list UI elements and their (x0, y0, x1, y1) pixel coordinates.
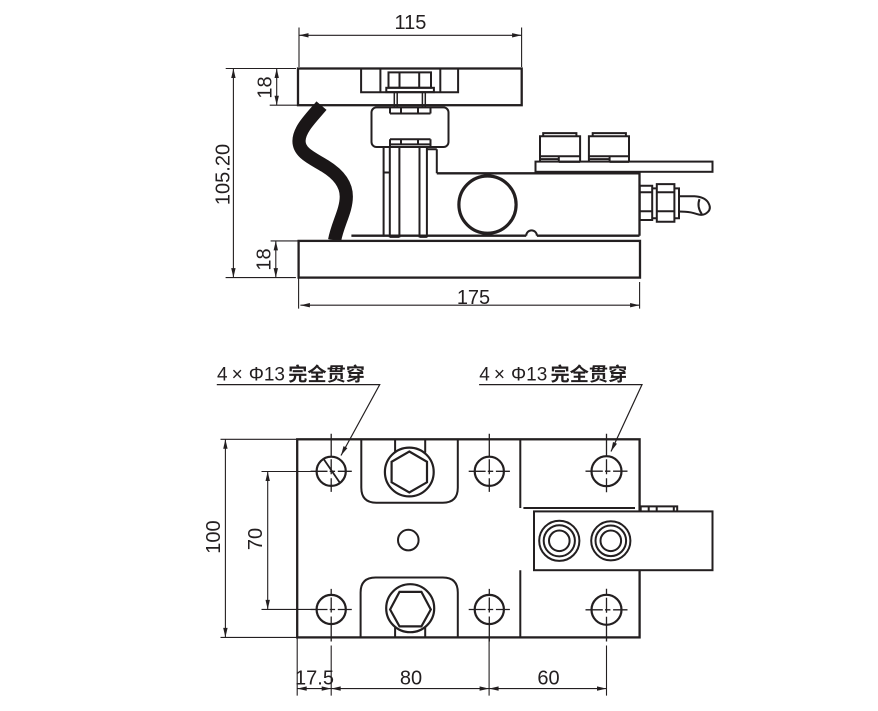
svg-text:60: 60 (537, 668, 559, 690)
svg-text:100: 100 (203, 520, 225, 553)
svg-text:70: 70 (245, 528, 267, 550)
svg-text:18: 18 (254, 248, 276, 270)
svg-text:115: 115 (395, 12, 427, 34)
svg-text:17.5: 17.5 (295, 668, 334, 690)
svg-text:18: 18 (255, 76, 277, 98)
svg-text:105.20: 105.20 (213, 144, 235, 205)
svg-text:4×Φ13: 4×Φ13 (479, 365, 547, 386)
svg-text:4×Φ13: 4×Φ13 (217, 365, 285, 386)
svg-text:80: 80 (400, 668, 422, 690)
svg-text:175: 175 (457, 287, 490, 309)
